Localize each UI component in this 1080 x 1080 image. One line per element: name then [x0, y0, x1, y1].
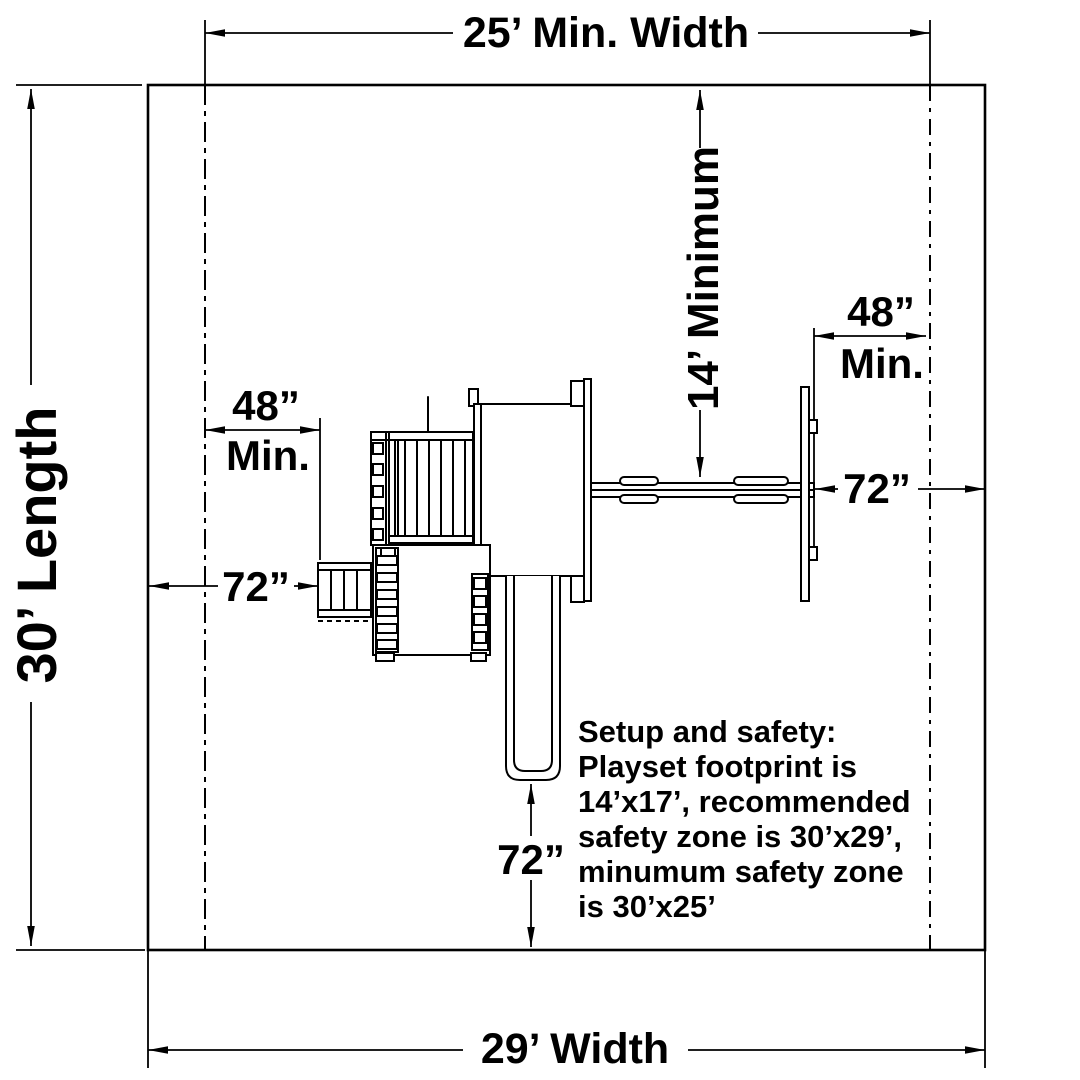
rung — [474, 632, 486, 643]
step-cap — [381, 548, 395, 556]
dimension-top-width: 25’ Min. Width — [205, 9, 930, 85]
swing-hanger-plate — [620, 477, 658, 485]
climb-hold — [373, 443, 383, 454]
left-72-label: 72” — [222, 563, 290, 610]
rung — [377, 640, 397, 649]
dimension-bottom-width: 29’ Width — [148, 950, 985, 1073]
fort-corner-post — [571, 381, 584, 406]
foot-pad — [376, 653, 394, 661]
swing-hanger-plate — [734, 495, 788, 503]
swing-end-bracket — [809, 547, 817, 560]
playset-slide — [506, 576, 560, 780]
swing-hanger-plate — [734, 477, 788, 485]
setup-safety-note: Setup and safety: Playset footprint is 1… — [578, 714, 911, 924]
rung — [474, 614, 486, 625]
dimension-left-72: 72” — [149, 563, 318, 610]
note-line: minumum safety zone — [578, 854, 904, 889]
climb-hold — [373, 529, 383, 540]
playset-safety-diagram: 25’ Min. Width 30’ Length 29’ Width 14’ … — [0, 0, 1080, 1080]
rung — [377, 624, 397, 633]
swing-vertical-label: 14’ Minimum — [679, 146, 728, 410]
rung — [474, 578, 486, 589]
diagram-canvas: 25’ Min. Width 30’ Length 29’ Width 14’ … — [0, 0, 1080, 1080]
playset-swing-beam — [591, 387, 817, 601]
dimension-slide-72: 72” — [497, 784, 565, 947]
note-line: is 30’x25’ — [578, 889, 716, 924]
left-48-label: 48” — [232, 382, 300, 429]
note-line: 14’x17’, recommended — [578, 784, 911, 819]
rung — [377, 590, 397, 599]
playset-ladder — [318, 563, 371, 621]
dimension-left-48: 48” Min. — [205, 382, 320, 560]
swing-end-bracket — [809, 420, 817, 433]
right-48-label: 48” — [847, 288, 915, 335]
dimension-swing-vertical: 14’ Minimum — [679, 90, 728, 477]
dimension-right-48: 48” Min. — [814, 288, 926, 552]
left-48-min-label: Min. — [226, 432, 310, 479]
note-line: safety zone is 30’x29’, — [578, 819, 902, 854]
playset-roof-section — [371, 397, 473, 545]
left-length-label: 30’ Length — [5, 407, 68, 684]
dimension-right-72: 72” — [815, 465, 985, 512]
swing-end-frame — [801, 387, 809, 601]
climb-hold — [373, 508, 383, 519]
note-line: Playset footprint is — [578, 749, 857, 784]
rung — [377, 556, 397, 565]
right-48-min-label: Min. — [840, 340, 924, 387]
rung — [377, 573, 397, 582]
slide-72-label: 72” — [497, 836, 565, 883]
rung — [377, 607, 397, 616]
rung — [474, 596, 486, 607]
playset-climber-section — [373, 545, 490, 661]
climb-hold — [373, 464, 383, 475]
right-72-label: 72” — [843, 465, 911, 512]
climb-hold — [373, 486, 383, 497]
swing-beam-support — [584, 379, 591, 601]
note-line: Setup and safety: — [578, 714, 836, 749]
fort-corner-post — [571, 576, 584, 602]
bottom-width-label: 29’ Width — [481, 1025, 669, 1073]
swing-hanger-plate — [620, 495, 658, 503]
top-width-label: 25’ Min. Width — [463, 9, 749, 57]
foot-pad — [471, 653, 486, 661]
dimension-left-length: 30’ Length — [5, 85, 145, 950]
